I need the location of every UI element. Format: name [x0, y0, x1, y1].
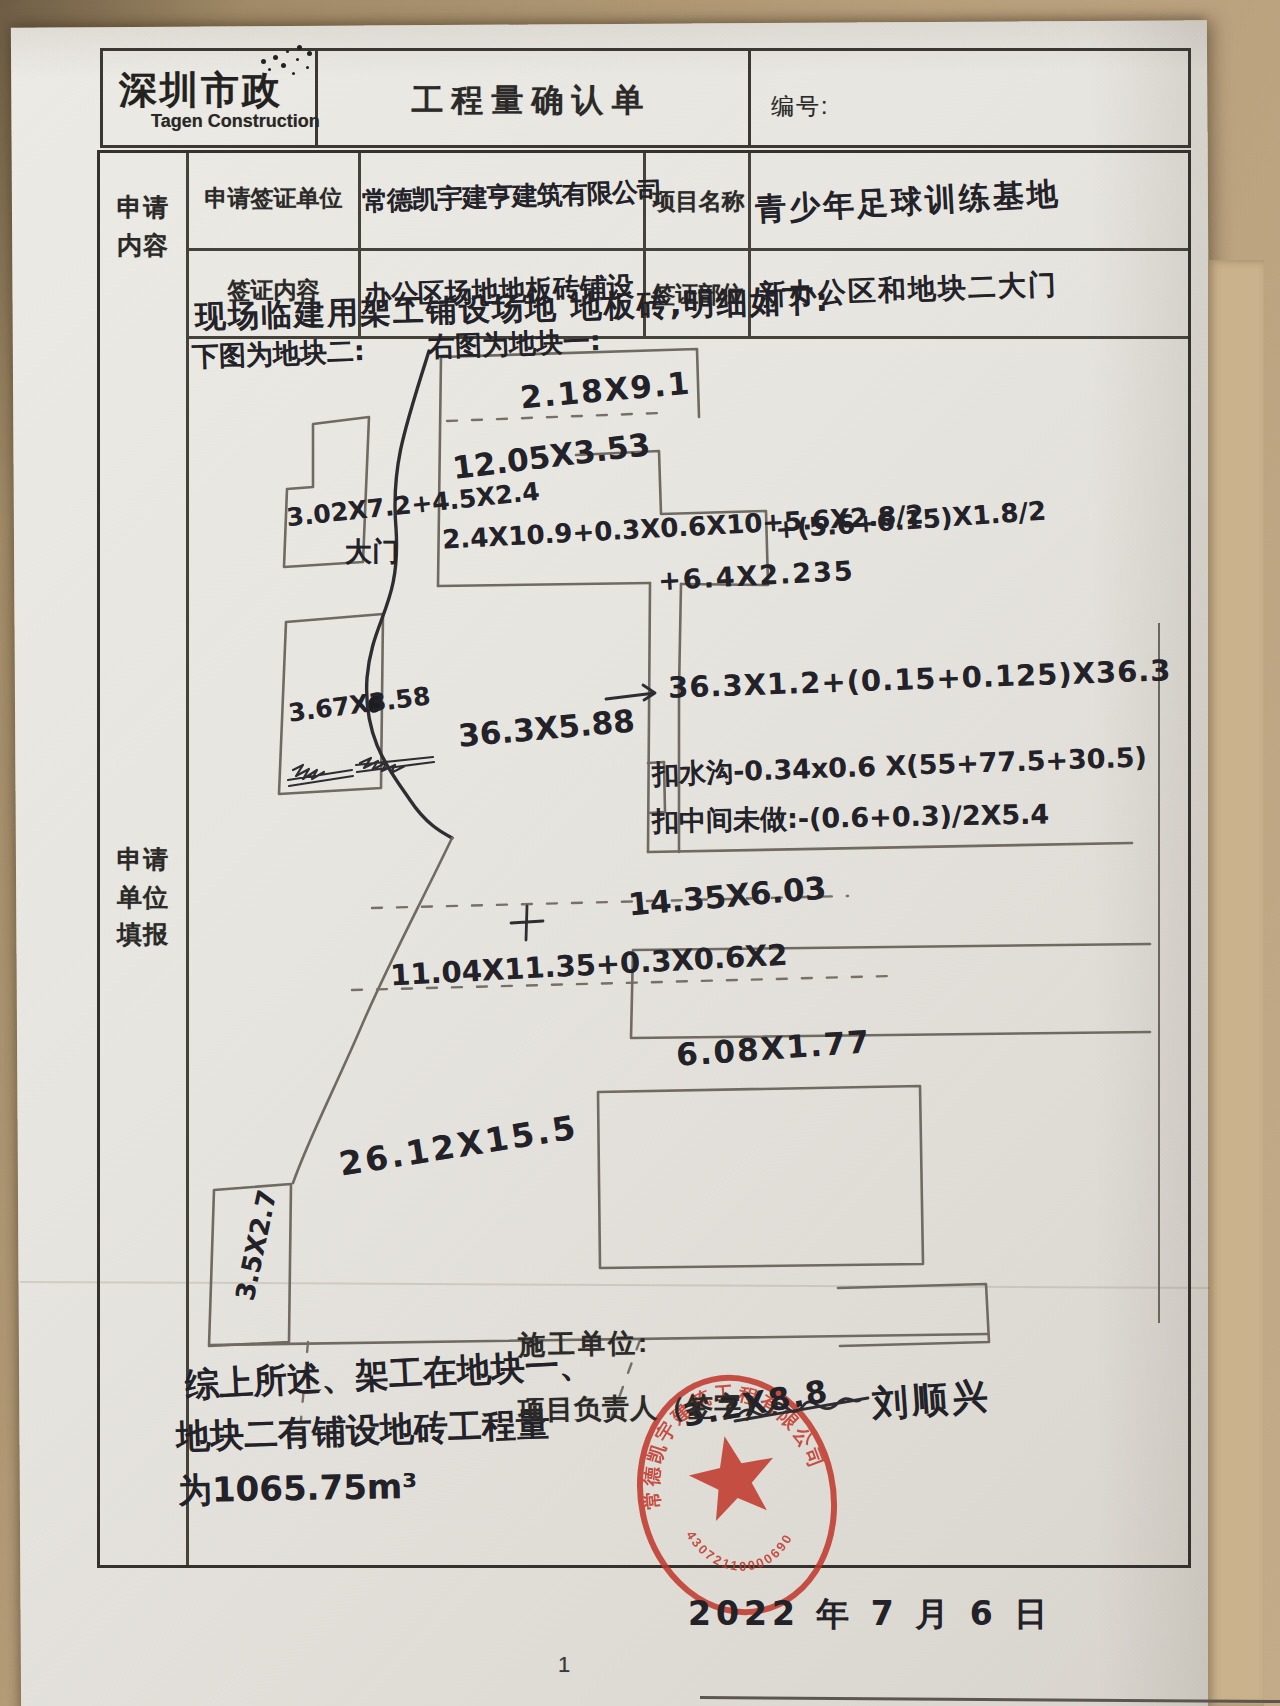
field-value-project-name: 青少年足球训练基地 — [754, 173, 1062, 231]
field-value-apply-unit: 常德凯宇建亨建筑有限公司 — [361, 174, 662, 219]
table-line — [186, 153, 189, 1565]
field-label-project-name: 项目名称 — [646, 186, 751, 217]
underlying-page-edge — [1208, 260, 1264, 1706]
table-line-double-edge — [1158, 623, 1160, 1323]
header-divider-2 — [748, 51, 751, 145]
form-title: 工程量确认单 — [315, 79, 748, 123]
table-line — [186, 248, 1188, 251]
field-label-apply-unit: 申请签证单位 — [189, 183, 358, 214]
table-line — [358, 153, 361, 336]
company-logo-subtitle: Tagen Construction — [151, 111, 320, 132]
field-value-visa-location: 新办公区和地块二大门 — [757, 266, 1058, 314]
table-line — [186, 336, 1188, 339]
section-label-application-content: 申请 内容 — [100, 189, 186, 264]
serial-number-label: 编号: — [771, 91, 829, 122]
section-label-applicant-fill: 申请 单位 填报 — [100, 841, 186, 954]
field-value-visa-content: 办公区场地地板砖铺设 — [363, 268, 634, 313]
field-label-visa-content: 签证内容 — [189, 275, 358, 306]
scanned-document: 深圳市政 Tagen Construction 工程量确认单 编号: 申请 内容… — [0, 0, 1280, 1706]
company-logo-text: 深圳市政 — [119, 65, 283, 116]
logo-dots-icon — [261, 59, 266, 64]
field-label-visa-location: 签证部位 — [646, 279, 751, 310]
form-body-table: 申请 内容 申请 单位 填报 申请签证单位 常德凯宇建亨建筑有限公司 项目名称 … — [97, 150, 1191, 1568]
form-header: 深圳市政 Tagen Construction 工程量确认单 编号: — [100, 48, 1191, 148]
